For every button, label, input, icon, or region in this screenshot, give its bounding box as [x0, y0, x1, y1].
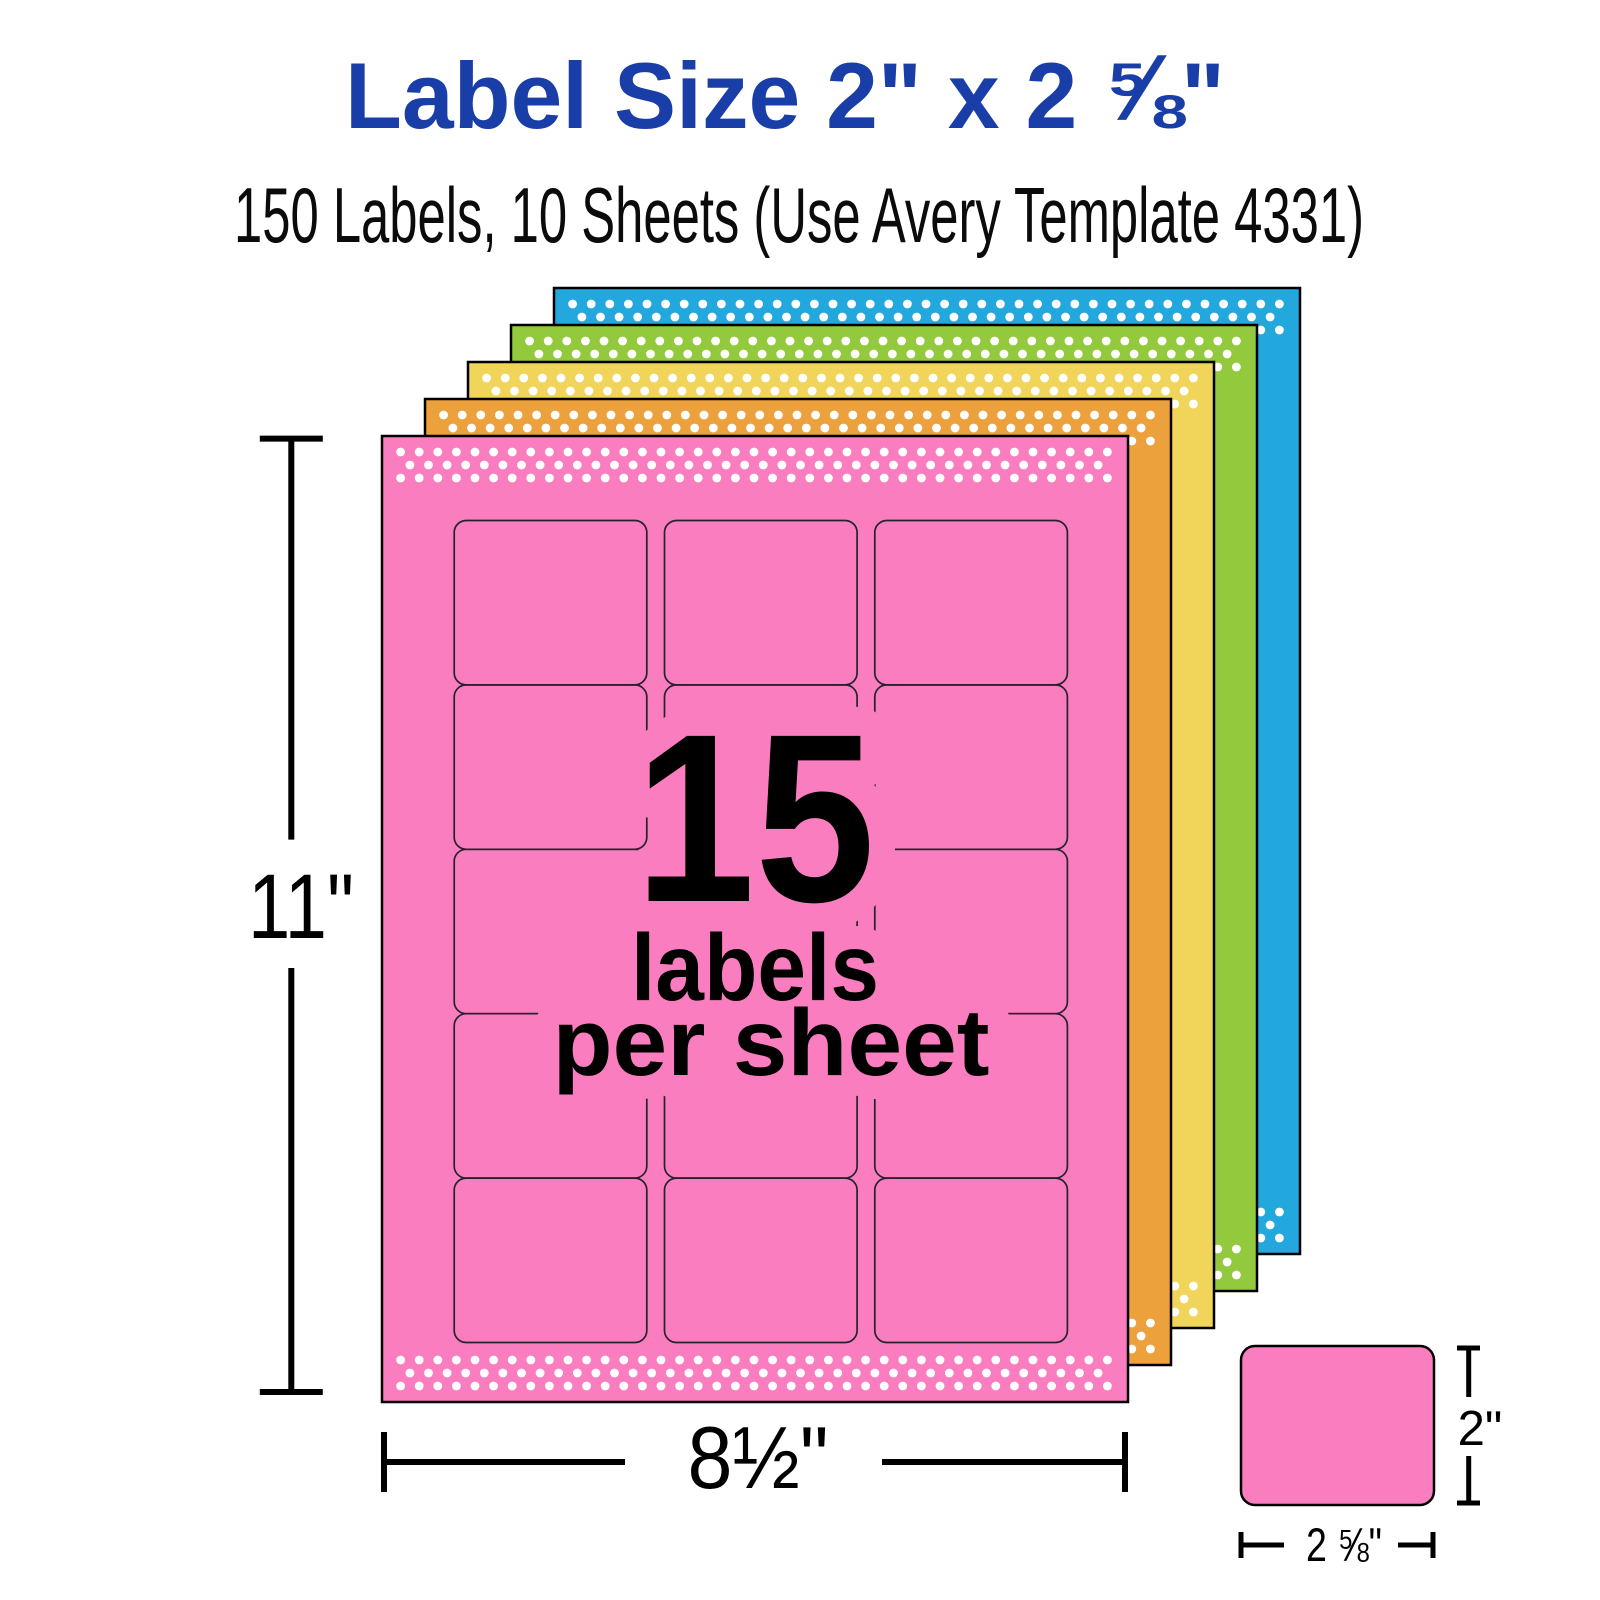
svg-text:2 ⅝": 2 ⅝" [1306, 1518, 1382, 1571]
svg-text:150 Labels, 10 Sheets (Use Ave: 150 Labels, 10 Sheets (Use Avery Templat… [234, 171, 1364, 259]
svg-text:15: 15 [635, 684, 875, 952]
svg-text:8½": 8½" [688, 1408, 829, 1507]
svg-text:11": 11" [248, 856, 354, 958]
svg-text:per sheet: per sheet [553, 990, 990, 1096]
svg-text:2": 2" [1458, 1402, 1503, 1456]
svg-text:Label Size 2" x 2 ⅝": Label Size 2" x 2 ⅝" [345, 35, 1225, 148]
